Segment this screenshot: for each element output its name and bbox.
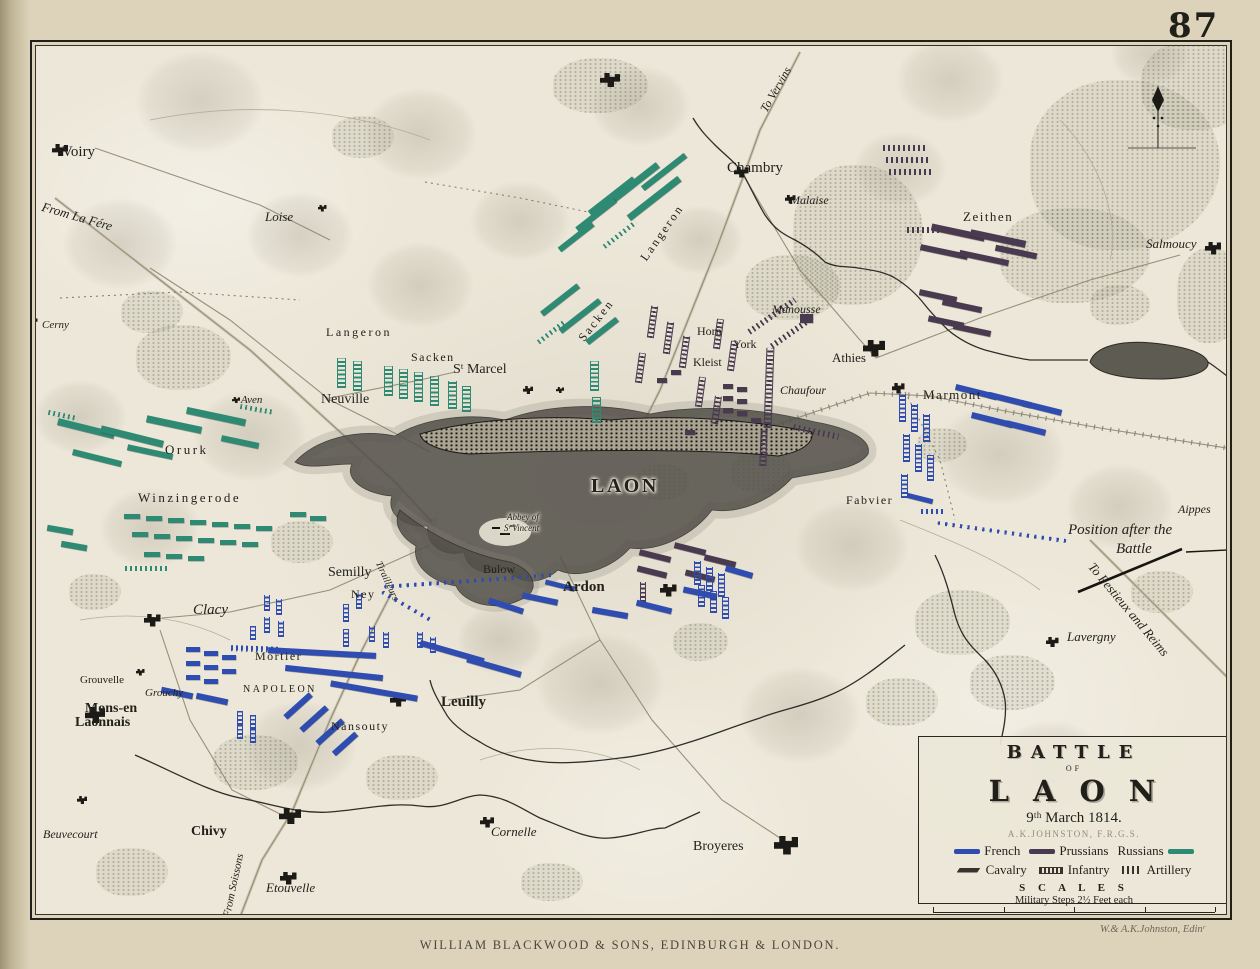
page-torn-edge [0,0,30,969]
map-frame-inner [35,45,1227,915]
map-sheet: VoiryFrom La FéreLoiseCernyLangeronSacke… [0,0,1260,969]
page-number: 87 [1168,6,1219,46]
engraver-credit: W.& A.K.Johnston, Edinʳ [1100,924,1205,935]
publisher-imprint: WILLIAM BLACKWOOD & SONS, EDINBURGH & LO… [0,938,1260,953]
map-frame [30,40,1232,920]
